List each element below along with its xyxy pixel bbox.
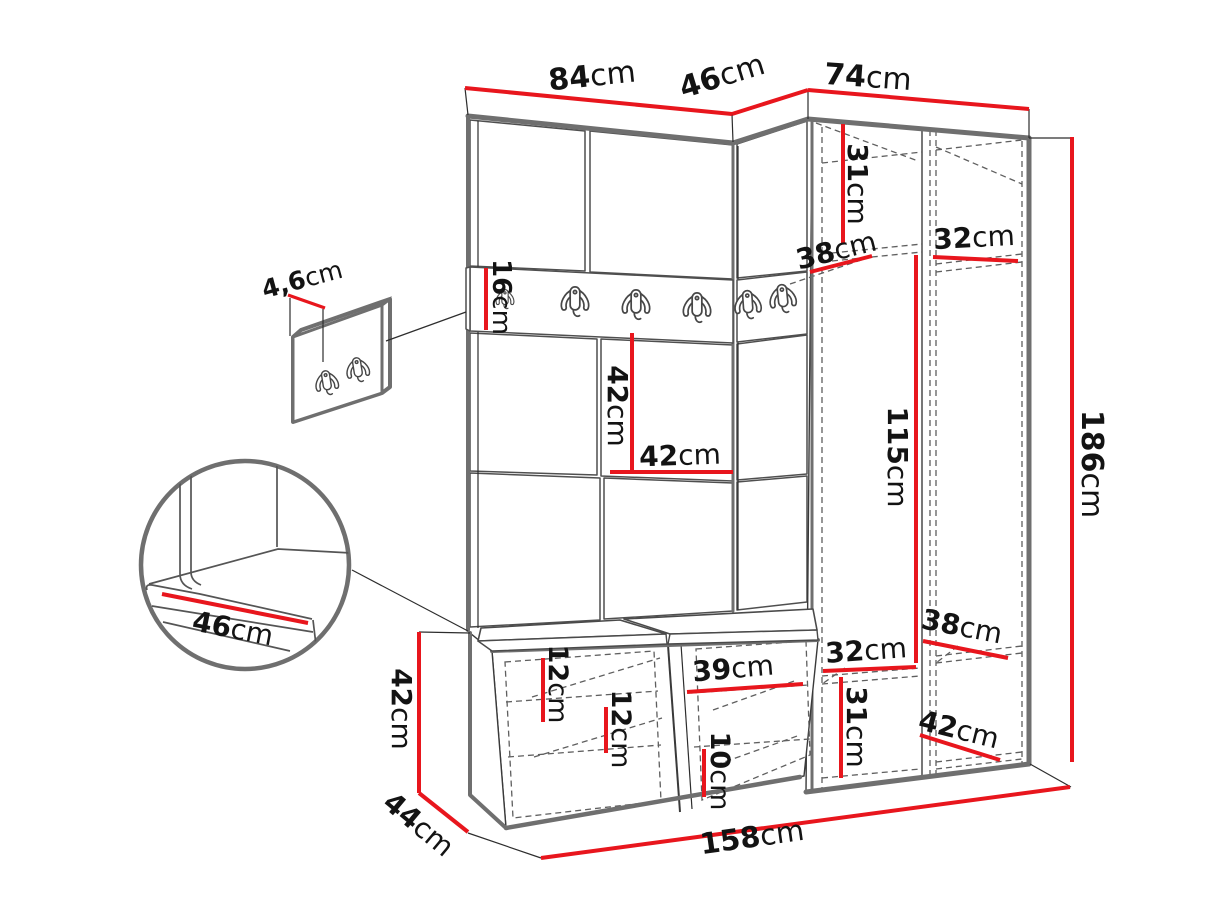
dim-label-12-b: 12cm — [606, 690, 637, 769]
corner-wall-panel — [737, 476, 807, 610]
dim-line-46-top — [732, 90, 808, 114]
dim-label-74: 74cm — [823, 56, 913, 97]
leader-line-panel — [386, 312, 466, 341]
dim-line-74 — [808, 90, 1029, 109]
hanger-panel-front — [293, 305, 382, 422]
dim-label-31-top: 31cm — [842, 143, 875, 225]
extension-line — [468, 833, 541, 858]
wall-panel — [590, 131, 733, 279]
dim-label-42-wall-v: 42cm — [602, 365, 635, 447]
shoe-bench — [470, 609, 818, 828]
dim-label-46-top: 46cm — [675, 46, 769, 105]
dim-label-84: 84cm — [547, 54, 638, 98]
wall-panel — [470, 120, 585, 271]
dim-label-186: 186cm — [1075, 410, 1110, 518]
dim-label-4-6: 4,6cm — [258, 254, 345, 303]
dim-label-31-low: 31cm — [841, 686, 874, 768]
dim-label-12-a: 12cm — [543, 645, 574, 724]
dim-label-44: 44cm — [377, 785, 461, 863]
wall-panel — [470, 473, 600, 627]
dim-label-42-wall-h: 42cm — [639, 437, 722, 473]
dim-label-115: 115cm — [882, 406, 915, 507]
wall-hanger-detail — [293, 299, 390, 422]
hook-rail-side-edge — [466, 267, 470, 331]
wall-panel — [470, 333, 597, 475]
dim-label-16: 16cm — [486, 259, 516, 335]
dim-label-158: 158cm — [698, 813, 806, 861]
dim-label-32-low: 32cm — [824, 631, 908, 670]
dimension-diagram: 84cm 46cm 74cm 186cm 31cm 38cm 32cm 16cm… — [0, 0, 1214, 911]
extension-line — [419, 632, 470, 633]
extension-line — [1030, 764, 1071, 787]
dim-line-4-6 — [288, 295, 325, 308]
wall-panel-section — [468, 116, 807, 630]
diagram-canvas: 84cm 46cm 74cm 186cm 31cm 38cm 32cm 16cm… — [0, 0, 1214, 911]
extension-line — [465, 88, 468, 115]
wall-panel — [604, 478, 733, 619]
leader-line-circle — [352, 570, 468, 631]
hook-rail — [466, 267, 807, 343]
dim-label-10: 10cm — [705, 732, 736, 811]
dim-label-42-left: 42cm — [386, 668, 419, 750]
corner-wall-panel — [737, 335, 807, 480]
extension-line — [732, 114, 733, 142]
dim-label-32-top: 32cm — [932, 218, 1015, 255]
